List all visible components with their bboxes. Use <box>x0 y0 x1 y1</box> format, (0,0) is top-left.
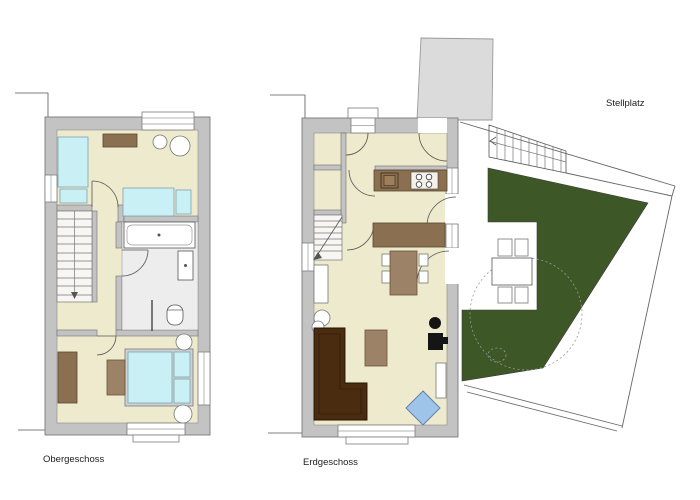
site-bottom-line-b <box>467 392 617 431</box>
obergeschoss-label: Obergeschoss <box>43 454 105 465</box>
bathroom <box>122 222 198 331</box>
nightstand-icon <box>174 405 192 423</box>
bed-pillow <box>60 189 87 203</box>
nightstand-icon <box>176 334 192 350</box>
garden-table <box>492 258 532 285</box>
bed-pillow <box>174 352 190 377</box>
wood-stove-icon <box>428 333 443 350</box>
garden-chair <box>498 287 512 303</box>
wood-stove-pipe-icon <box>429 317 441 329</box>
cooktop-icon <box>411 172 438 189</box>
entry-door-opening <box>418 118 447 133</box>
garden-chair <box>515 239 528 256</box>
erdgeschoss-label: Erdgeschoss <box>303 457 358 468</box>
property-line <box>270 95 305 118</box>
toilet-icon <box>167 305 183 325</box>
exterior-stairs <box>489 125 566 173</box>
window-sill <box>346 437 408 444</box>
site-bottom-line-a <box>464 385 622 426</box>
stairs-up <box>57 211 92 302</box>
round-table-icon <box>170 136 190 156</box>
neighbor-building <box>417 38 493 120</box>
floor-plan-svg: Stellplatz <box>0 0 700 500</box>
radiator-icon <box>436 363 446 398</box>
single-bed-icon <box>58 137 88 187</box>
wardrobe-icon <box>58 352 77 403</box>
property-line <box>15 93 48 117</box>
side-table-icon <box>107 360 125 395</box>
floor-plan-page: Stellplatz <box>0 0 700 500</box>
single-bed-icon <box>123 188 174 216</box>
dresser-icon <box>103 134 137 147</box>
coffee-table-icon <box>365 330 387 366</box>
dining-chair <box>419 254 428 266</box>
double-bed-icon <box>128 352 172 403</box>
kitchen-sink-icon <box>384 176 395 186</box>
garden-chair <box>498 239 512 256</box>
dining-table-icon <box>390 251 417 295</box>
round-table-icon <box>153 135 167 149</box>
garden <box>462 168 648 381</box>
stellplatz-label: Stellplatz <box>606 98 645 109</box>
erdgeschoss-plan: Erdgeschoss <box>268 95 459 468</box>
shelf-icon <box>314 265 328 303</box>
terrace-door-opening <box>445 248 459 284</box>
dining-chair <box>419 271 428 283</box>
entry-step <box>348 108 378 118</box>
stairs-up <box>313 215 342 260</box>
stairs-direction-arrow <box>490 137 496 145</box>
garden-chair <box>515 287 528 303</box>
bed-pillow <box>174 379 190 403</box>
bed-pillow <box>176 190 191 214</box>
window <box>142 112 194 130</box>
garden-table-set <box>492 239 532 303</box>
obergeschoss-plan: Obergeschoss <box>15 93 210 465</box>
sideboard-icon <box>373 223 445 247</box>
window-sill <box>133 435 179 442</box>
kitchen <box>374 170 447 191</box>
